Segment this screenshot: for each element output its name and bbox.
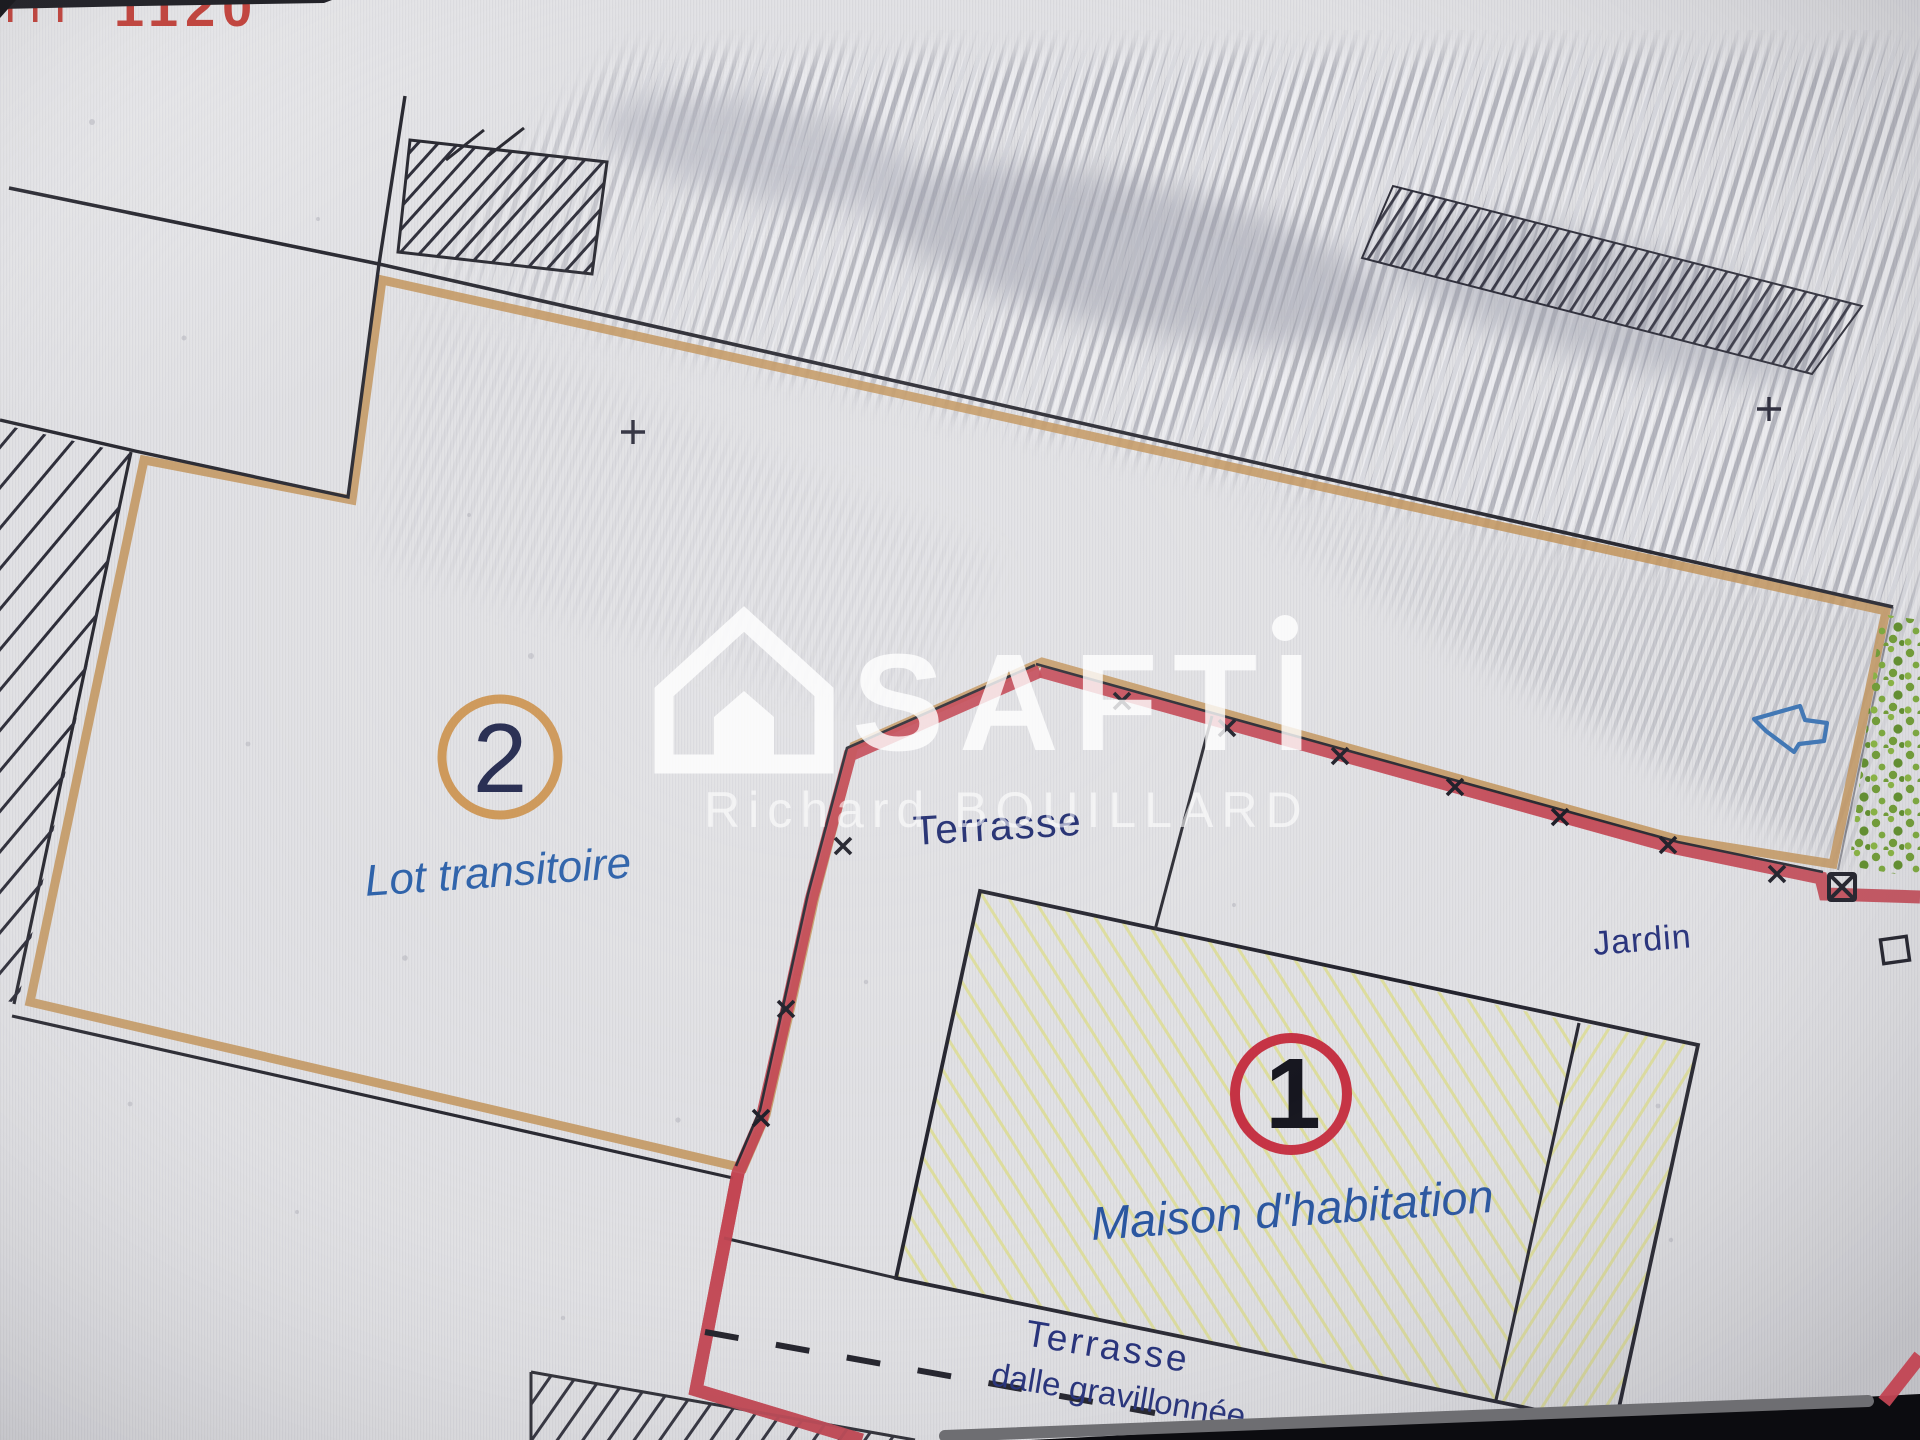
svg-text:SAFTI: SAFTI — [852, 626, 1326, 780]
svg-text:Richard BOUILLARD: Richard BOUILLARD — [704, 782, 1310, 838]
